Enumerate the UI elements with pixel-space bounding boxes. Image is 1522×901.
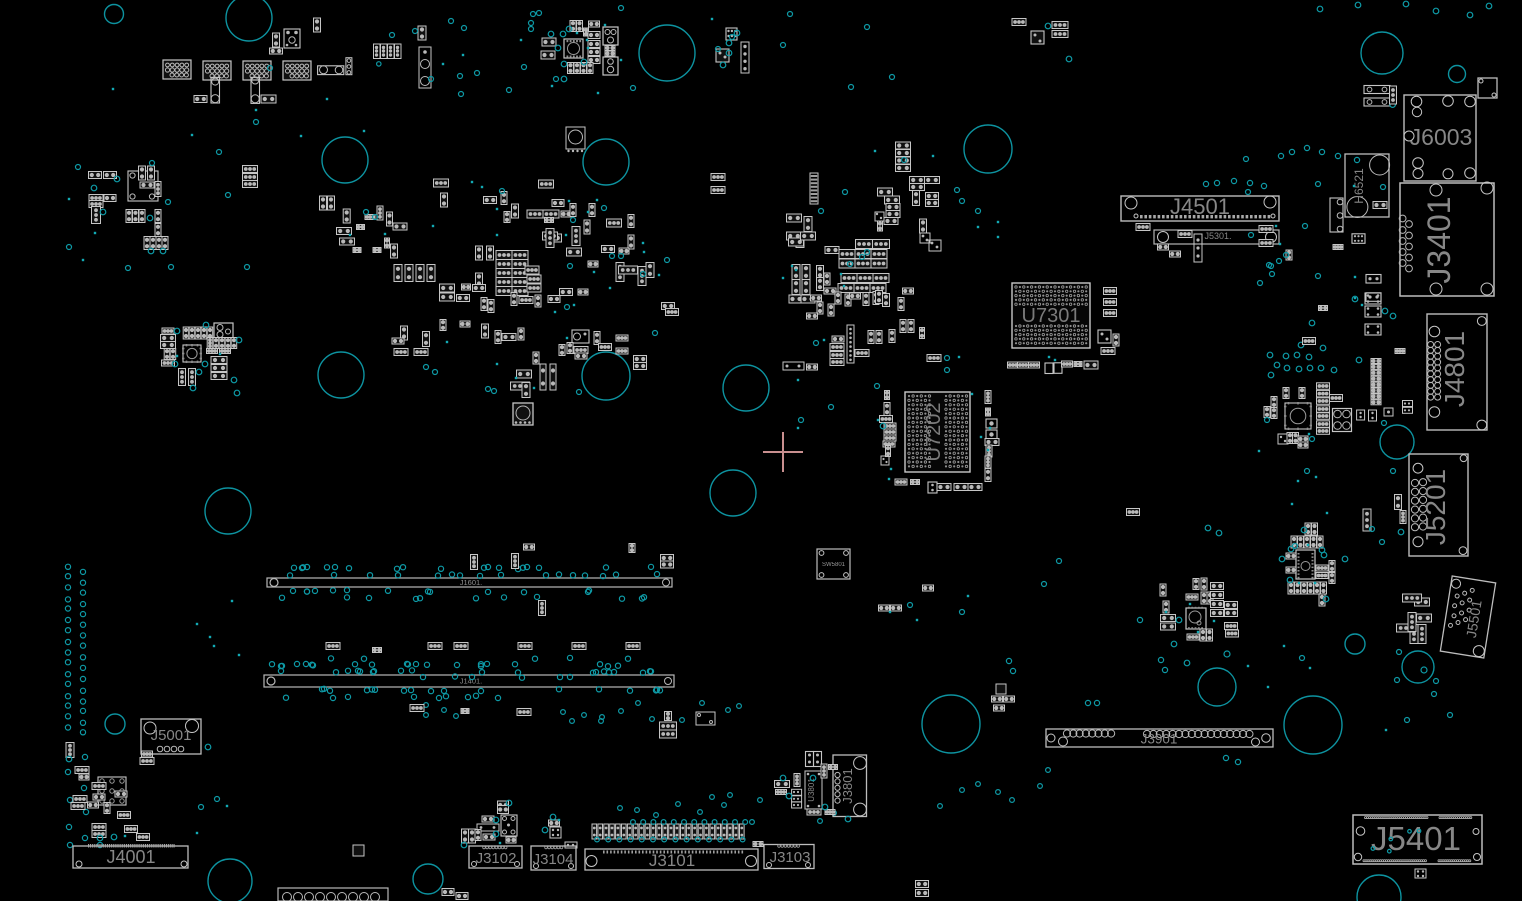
svg-text:U7301: U7301 (1022, 305, 1081, 327)
svg-text:U3801: U3801 (807, 778, 816, 802)
svg-text:J5201: J5201 (1420, 469, 1451, 545)
svg-text:J1401.: J1401. (460, 677, 483, 686)
svg-text:J3901: J3901 (1141, 732, 1178, 747)
svg-text:J1601.: J1601. (460, 578, 483, 587)
svg-text:U7202: U7202 (923, 403, 945, 462)
svg-text:J5001: J5001 (151, 727, 192, 744)
svg-text:J3104: J3104 (533, 851, 574, 868)
svg-text:J3401: J3401 (1421, 196, 1457, 283)
svg-text:J3103: J3103 (770, 849, 811, 866)
svg-text:J5301.: J5301. (1204, 231, 1231, 241)
svg-text:J3102: J3102 (476, 850, 517, 867)
svg-text:J3101: J3101 (649, 851, 695, 870)
svg-text:J3801: J3801 (840, 768, 855, 803)
svg-text:J4501: J4501 (1170, 194, 1230, 219)
svg-text:J5401: J5401 (1371, 820, 1461, 857)
svg-text:J6003: J6003 (1410, 124, 1473, 150)
svg-text:SW5801: SW5801 (822, 562, 846, 568)
svg-text:J4001: J4001 (106, 847, 155, 867)
svg-text:J4801: J4801 (1439, 331, 1470, 407)
